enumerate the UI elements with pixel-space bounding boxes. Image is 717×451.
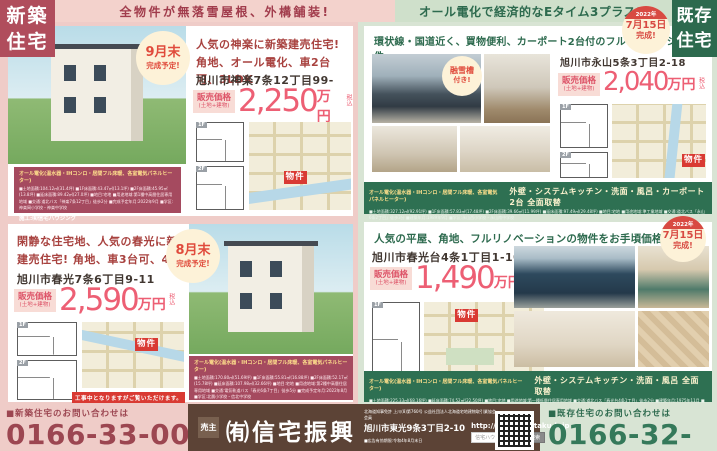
spec-detail: ■土地面積:327.12㎡(92.91坪) ■1F床面積:57.83㎡(17.4… [369,209,707,222]
price-label-main: 販売価格 [18,292,52,302]
license-text: 北海道知事免許 上川(8)第760号 公益社団法人北海道宅地建物取引業協会会員 [364,409,498,420]
spec-box: オール電化(温水器・IHコンロ・居間フル床暖、各室電気パネルヒーター) ■土地面… [189,356,353,400]
property-marker: 物件 [455,309,478,322]
kitchen-photo [484,54,550,123]
floorplan-2f-label: 2F [17,360,28,366]
exterior-photo [514,246,635,308]
map-road-main [663,104,683,178]
property-marker: 物件 [682,154,705,167]
price-unit: 万円 [317,86,343,126]
badge-note: 完成予定! [146,61,179,70]
badge-done: 完成! [660,242,706,251]
company-address: 旭川市東光9条3丁目2-10 [364,422,465,434]
floorplan-1f: 1F [17,322,77,356]
property-title: 人気の平屋、角地、フルリノベーションの物件をお手頃価格で! [374,231,678,246]
location-map: 物件 [612,104,706,178]
price-value: 2,590 [59,285,138,316]
floorplan-2f-label: 2F [560,152,571,158]
price-label-main: 販売価格 [562,76,596,86]
badge-date: 7月15日 [660,230,706,242]
floorplan-1f-label: 1F [196,122,207,128]
spec-title: オール電化(温水器・IHコンロ・居間フル床暖、各室電気パネルヒーター) [19,171,176,185]
spec-detail: ■土地面積:170.80㎡(51.69坪) ■1F床面積:55.81㎡(16.8… [194,375,348,401]
price-block: 販売価格 (土地+建物) 2,590 万円 税込 [14,285,176,316]
snow-badge-line2: 付き! [453,76,470,84]
company-info-panel: 売主 ㈲信宅振興 北海道知事免許 上川(8)第760号 公益社団法人北海道宅地建… [188,404,540,451]
completion-date-badge: 2022年 7月15日 完成! [660,216,706,262]
location-map: 物件 [82,322,184,388]
tab-existing-housing: 既存 住宅 [672,0,717,57]
badge-date: 7月15日 [622,20,670,32]
house-shape [51,44,144,141]
tab-new-line1: 新築 [0,4,55,30]
seller-badge: 売主 [198,417,219,438]
property-card-nagayama: 環状線・国道近く、買物便利、カーポート2台付のフルリノベーション物件 融雪槽 付… [364,26,712,214]
badge-month: 8月末 [175,244,210,258]
company-name: ㈲信宅振興 [226,413,356,447]
map-park [446,348,494,366]
wallpaper-room-photo [638,311,709,367]
location-map: 物件 [249,122,351,210]
stairs-photo [372,126,457,172]
property-card-shunkodai: 人気の平屋、角地、フルリノベーションの物件をお手頃価格で! 旭川市春光台4条1丁… [364,222,712,402]
headline-left-text: 全物件が無落雪屋根、外構舗装! [120,3,331,20]
price-label: 販売価格 (土地+建物) [193,90,235,113]
price-label-note: (土地+建物) [374,280,408,287]
price-tax: 税込 [696,77,705,89]
price-label: 販売価格 (土地+建物) [370,267,412,290]
spec-title: オール電化(温水器・IHコンロ・居間フル床暖、各室電気パネルヒーター) [369,190,501,204]
spec-title: オール電化(温水器・IHコンロ・居間フル床暖、各室電気パネルヒーター) [194,360,348,374]
spec-detail: ■土地面積:104.12㎡(31.4坪) ■1F床面積:43.47㎡(13.1坪… [19,186,176,212]
existing-contact-phone: 0166-32-2222 [548,419,717,451]
price-value: 1,490 [415,263,494,294]
floorplan-1f: 1F [560,104,608,148]
price-label: 販売価格 (土地+建物) [14,289,56,312]
banner-headline-left: 全物件が無落雪屋根、外構舗装! [55,0,395,22]
spec-box: オール電化(温水器・IHコンロ・居間フル床暖、各室電気パネルヒーター) 外壁・シ… [364,371,712,402]
spec-box: オール電化(温水器・IHコンロ・居間フル床暖、各室電気パネルヒーター) 外壁・シ… [364,182,712,214]
tab-new-housing: 新築 住宅 [0,0,55,57]
floorplan-2f: 2F [196,166,244,210]
price-value: 2,250 [238,86,317,117]
completion-badge: 8月末 完成予定! [166,229,220,283]
property-marker: 物件 [284,171,307,184]
builder-credit: 施工:㈲信宅ハウジング [19,214,176,222]
title-line1: 人気の神楽に新築建売住宅! [196,36,353,54]
floorplan-1f-label: 1F [17,322,28,328]
map-river [82,328,184,365]
snow-melting-badge: 融雪槽 付き! [442,56,482,96]
flyer-page: 全物件が無落雪屋根、外構舗装! オール電化で経済的なEタイム3プラス!! 新築 … [0,0,717,451]
price-tax: 税込 [167,293,176,305]
floorplan-2f-label: 2F [196,166,207,172]
renovation-summary: 外壁・システムキッチン・洗面・風呂 全面取替 [534,375,707,397]
floorplan-1f-label: 1F [372,302,383,308]
floorplan-2f: 2F [17,360,77,400]
price-unit: 万円 [667,74,695,94]
badge-done: 完成! [622,32,670,41]
property-card-kagura: 9月末 完成予定! 人気の神楽に新築建売住宅! 角地、オール電化、車2台可、3L… [8,26,353,216]
price-label: 販売価格 (土地+建物) [558,73,600,96]
renovation-summary: 外壁・システムキッチン・洗面・風呂・カーポート2台 全面取替 [509,186,707,208]
price-block: 販売価格 (土地+建物) 2,040 万円 税込 [558,69,705,96]
badge-month: 9月末 [145,46,180,60]
price-unit: 万円 [138,294,166,314]
qr-code [495,411,534,450]
tab-existing-line2: 住宅 [672,29,717,54]
floorplan-2f: 2F [560,152,608,178]
price-label-note: (土地+建物) [562,86,596,93]
badge-note: 完成予定! [176,259,209,268]
living-room-photo [460,126,550,172]
existing-housing-contact: ■既存住宅のお問い合わせは 0166-32-2222 [548,407,717,451]
headline-right-text: オール電化で経済的なEタイム3プラス!! [419,3,648,20]
price-tax: 税込 [344,94,353,106]
price-label-main: 販売価格 [374,270,408,280]
ad-validity: ■広告有効期限:令和4年8月末日 [364,438,465,444]
construction-note: 工事中となりますがご覧いただけます。 [72,392,185,403]
completion-date-badge: 2022年 7月15日 完成! [622,6,670,54]
price-label-main: 販売価格 [197,93,231,103]
spec-box: オール電化(温水器・IHコンロ・居間フル床暖、各室電気パネルヒーター) ■土地面… [14,167,181,213]
house-shape [228,241,313,332]
property-card-shunko: 閑静な住宅地、人気の春光に新築 建売住宅! 角地、車3台可、4LDK 8月末 完… [8,224,353,402]
price-label-note: (土地+建物) [197,103,231,110]
price-value: 2,040 [603,69,667,95]
spec-title: オール電化(温水器・IHコンロ・居間フル床暖、各室電気パネルヒーター) [369,379,526,393]
tab-new-line2: 住宅 [0,30,55,56]
price-block: 販売価格 (土地+建物) 1,490 万円 税込 [370,263,532,294]
floorplan-1f: 1F [196,122,244,162]
property-marker: 物件 [135,338,158,351]
living-room-photo [514,311,635,367]
snow-badge-line1: 融雪槽 [450,67,474,76]
floorplan-1f-label: 1F [560,104,571,110]
price-label-note: (土地+建物) [18,302,52,309]
tab-existing-line1: 既存 [672,4,717,29]
qr-pattern [498,414,531,447]
completion-badge: 9月末 完成予定! [136,31,190,85]
company-details: 北海道知事免許 上川(8)第760号 公益社団法人北海道宅地建物取引業協会会員 … [364,409,498,444]
